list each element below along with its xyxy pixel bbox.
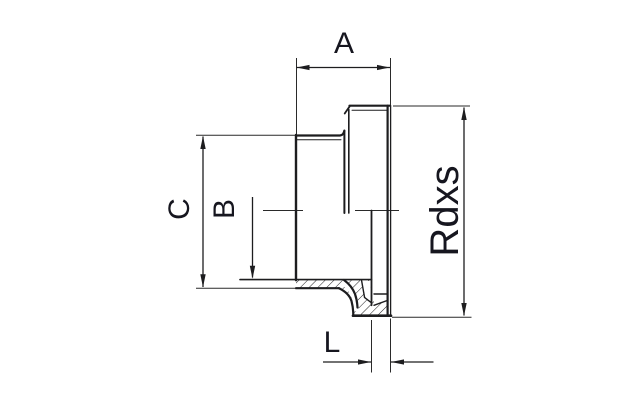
section-hatching <box>296 280 388 316</box>
label-b: B <box>208 199 241 219</box>
dimension-c: C <box>163 136 206 287</box>
dimension-thread: Rdxs <box>423 107 467 316</box>
arrowhead-up <box>200 136 205 149</box>
arrowhead-left <box>297 65 310 70</box>
dimension-l: L <box>323 326 434 365</box>
dimension-a: A <box>297 27 391 70</box>
dimension-b: B <box>208 197 255 279</box>
arrowhead-up <box>461 107 466 120</box>
arrowhead-left <box>391 359 404 364</box>
arrowhead-right <box>377 65 390 70</box>
arrowhead-down <box>200 274 205 287</box>
label-thread: Rdxs <box>423 165 467 256</box>
arrowhead-down <box>250 266 255 279</box>
fitting-section-drawing: A C B Rdxs L <box>0 0 640 401</box>
technical-drawing-canvas: A C B Rdxs L <box>0 0 640 401</box>
arrowhead-down <box>461 303 466 316</box>
label-l: L <box>324 326 341 359</box>
label-c: C <box>163 198 196 220</box>
arrowhead-right <box>358 359 371 364</box>
label-a: A <box>334 27 354 60</box>
